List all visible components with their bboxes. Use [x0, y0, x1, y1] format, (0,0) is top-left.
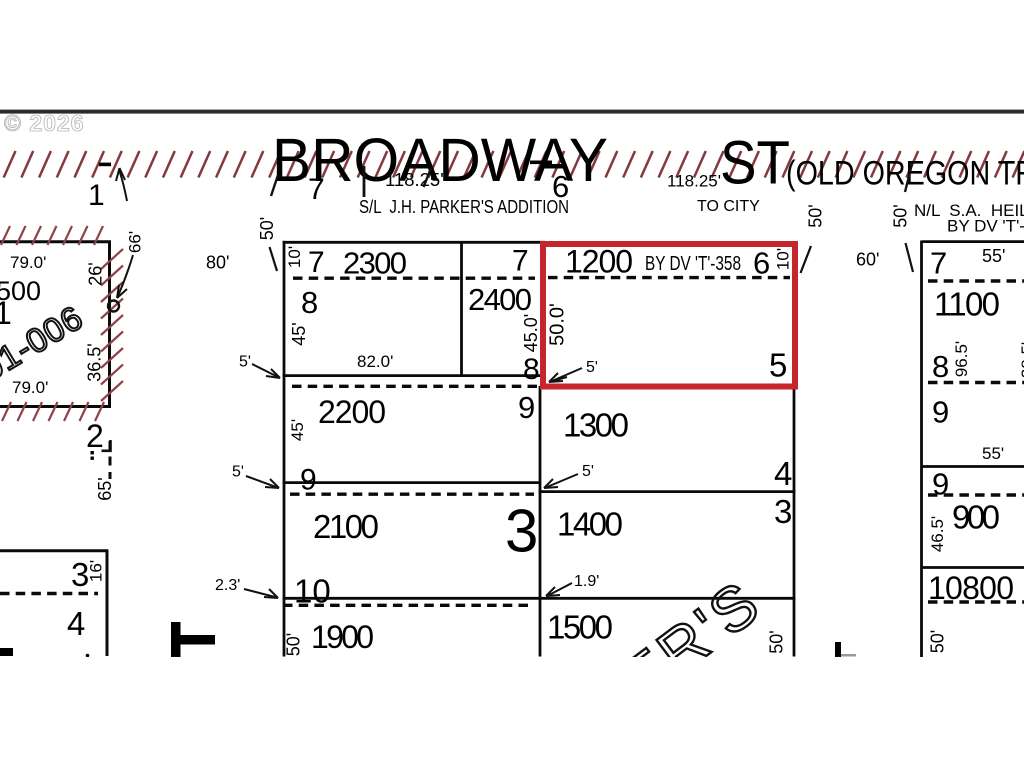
- svg-text:45.0': 45.0': [521, 314, 541, 352]
- svg-text:9: 9: [932, 395, 949, 430]
- svg-text:118.25': 118.25': [667, 172, 721, 191]
- svg-text:7: 7: [930, 246, 947, 281]
- svg-text:2: 2: [86, 418, 104, 454]
- svg-text:1: 1: [0, 295, 12, 331]
- svg-text:900: 900: [952, 499, 1000, 536]
- svg-text:7: 7: [308, 246, 325, 279]
- svg-text:45': 45': [288, 419, 307, 441]
- svg-text:2.3': 2.3': [215, 577, 240, 594]
- svg-text:5': 5': [586, 359, 598, 376]
- svg-text:1.9': 1.9': [574, 573, 599, 590]
- svg-text:45': 45': [289, 322, 309, 345]
- svg-text:7: 7: [512, 245, 529, 278]
- svg-text:6: 6: [552, 169, 569, 204]
- svg-text:55': 55': [982, 246, 1005, 266]
- svg-text:50': 50': [805, 204, 825, 227]
- svg-text:65': 65': [95, 477, 115, 500]
- svg-text:16': 16': [86, 560, 105, 582]
- svg-text:4: 4: [774, 455, 792, 492]
- svg-text:80': 80': [206, 253, 229, 273]
- svg-text:ST: ST: [720, 129, 790, 197]
- svg-text:5: 5: [769, 347, 787, 384]
- svg-text:50': 50': [766, 630, 786, 653]
- svg-text:4: 4: [67, 605, 85, 642]
- svg-text:8: 8: [932, 349, 949, 384]
- svg-text:7: 7: [308, 173, 325, 206]
- svg-text:10': 10': [773, 248, 792, 270]
- svg-text:82.0': 82.0': [357, 352, 393, 371]
- svg-text:2100: 2100: [313, 508, 379, 545]
- svg-text:1900: 1900: [311, 619, 374, 655]
- svg-text:9: 9: [300, 464, 317, 497]
- svg-text:TO CITY: TO CITY: [697, 198, 760, 215]
- svg-text:BY DV 'T'-358: BY DV 'T'-358: [645, 253, 741, 275]
- svg-text:5': 5': [239, 354, 251, 371]
- svg-text:6: 6: [753, 246, 770, 281]
- svg-text:55': 55': [982, 444, 1004, 463]
- svg-text:5': 5': [582, 463, 594, 480]
- svg-text:50': 50': [257, 217, 277, 240]
- svg-text:66': 66': [125, 231, 144, 253]
- svg-text:46.5': 46.5': [928, 516, 947, 552]
- svg-text:50.0': 50.0': [547, 303, 569, 346]
- svg-text:10800: 10800: [928, 570, 1014, 606]
- svg-text:1100: 1100: [934, 286, 1000, 323]
- svg-text:50': 50': [890, 204, 910, 227]
- svg-text:60': 60': [856, 250, 879, 270]
- svg-text:79.0': 79.0': [12, 378, 48, 397]
- svg-text:1200: 1200: [565, 244, 633, 280]
- svg-text:1400: 1400: [557, 506, 623, 543]
- svg-text:10': 10': [285, 246, 304, 268]
- svg-text:9: 9: [518, 390, 535, 425]
- svg-text:S/L J.H. PARKER'S ADDITION: S/L J.H. PARKER'S ADDITION: [359, 197, 569, 217]
- svg-text:(OLD OREGON TR: (OLD OREGON TR: [786, 155, 1024, 193]
- svg-text:2200: 2200: [318, 394, 386, 430]
- svg-text:79.0': 79.0': [10, 253, 46, 272]
- svg-text:01-006: 01-006: [0, 298, 90, 388]
- svg-text:3: 3: [505, 498, 538, 565]
- svg-text:2300: 2300: [343, 246, 407, 281]
- svg-text:50': 50': [927, 630, 947, 653]
- svg-text:BY DV 'T'-358: BY DV 'T'-358: [947, 217, 1024, 236]
- svg-text:38.5': 38.5': [1018, 342, 1024, 378]
- svg-text:3: 3: [774, 493, 792, 530]
- svg-text:36.5': 36.5': [84, 343, 104, 381]
- svg-text:8: 8: [301, 285, 318, 320]
- svg-text:1500: 1500: [547, 609, 613, 646]
- svg-text:1: 1: [88, 179, 105, 212]
- svg-text:1300: 1300: [563, 407, 629, 444]
- svg-text:9: 9: [932, 467, 949, 502]
- svg-text:50': 50': [283, 633, 303, 656]
- svg-text:5': 5': [232, 464, 244, 481]
- svg-text:2400: 2400: [468, 282, 532, 317]
- svg-text:© 2026: © 2026: [4, 110, 85, 136]
- svg-text:10: 10: [294, 573, 331, 610]
- svg-text:8: 8: [523, 353, 540, 386]
- svg-text:96.5': 96.5': [952, 341, 971, 377]
- svg-text:26': 26': [85, 262, 105, 285]
